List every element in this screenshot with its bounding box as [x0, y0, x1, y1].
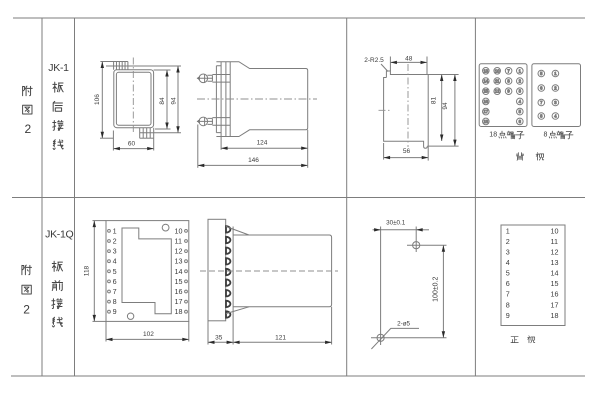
svg-text:14: 14 — [483, 79, 488, 84]
svg-text:4: 4 — [113, 257, 117, 266]
svg-text:124: 124 — [257, 140, 268, 147]
svg-text:11: 11 — [495, 79, 500, 84]
svg-text:4: 4 — [506, 258, 510, 267]
svg-text:9: 9 — [113, 307, 117, 316]
svg-text:JK-1: JK-1 — [48, 62, 69, 74]
svg-text:48: 48 — [405, 55, 413, 62]
svg-text:94: 94 — [442, 102, 449, 110]
svg-text:16: 16 — [175, 287, 183, 296]
svg-text:18: 18 — [175, 307, 183, 316]
svg-text:3: 3 — [113, 247, 117, 256]
svg-text:106: 106 — [94, 94, 101, 105]
svg-text:16: 16 — [551, 290, 559, 299]
svg-text:94: 94 — [170, 97, 177, 105]
svg-text:14: 14 — [175, 267, 183, 276]
svg-text:12: 12 — [175, 247, 183, 256]
svg-text:13: 13 — [551, 258, 559, 267]
svg-text:14: 14 — [551, 269, 559, 278]
svg-text:17: 17 — [551, 300, 559, 309]
svg-text:5: 5 — [113, 267, 117, 276]
svg-text:2: 2 — [506, 237, 510, 246]
svg-text:146: 146 — [248, 157, 259, 164]
svg-text:3: 3 — [506, 248, 510, 257]
svg-text:118: 118 — [83, 265, 90, 276]
svg-text:15: 15 — [551, 279, 559, 288]
svg-text:84: 84 — [159, 97, 166, 105]
svg-text:5: 5 — [506, 269, 510, 278]
svg-text:8: 8 — [544, 132, 548, 139]
svg-text:1: 1 — [113, 226, 117, 235]
svg-text:6: 6 — [113, 277, 117, 286]
svg-text:11: 11 — [551, 237, 558, 246]
svg-text:2-R2.5: 2-R2.5 — [364, 57, 384, 64]
svg-text:7: 7 — [506, 290, 510, 299]
svg-text:56: 56 — [403, 148, 411, 155]
svg-text:10: 10 — [175, 226, 183, 235]
svg-text:15: 15 — [483, 89, 488, 94]
svg-text:16: 16 — [483, 99, 488, 104]
svg-text:102: 102 — [143, 331, 154, 338]
svg-text:18: 18 — [551, 311, 559, 320]
svg-text:7: 7 — [113, 287, 117, 296]
svg-text:12: 12 — [495, 89, 500, 94]
svg-text:8: 8 — [506, 300, 510, 309]
svg-text:17: 17 — [175, 297, 183, 306]
svg-text:2: 2 — [23, 302, 30, 316]
svg-text:1: 1 — [506, 227, 510, 236]
svg-text:121: 121 — [275, 335, 286, 342]
svg-text:100±0.2: 100±0.2 — [433, 276, 440, 301]
svg-text:10: 10 — [551, 227, 559, 236]
svg-text:35: 35 — [215, 335, 223, 342]
svg-text:60: 60 — [128, 141, 136, 148]
svg-text:11: 11 — [175, 237, 182, 246]
svg-text:81: 81 — [430, 97, 437, 105]
svg-text:9: 9 — [506, 311, 510, 320]
svg-text:12: 12 — [551, 248, 559, 257]
svg-text:18: 18 — [483, 119, 488, 124]
svg-text:15: 15 — [175, 277, 183, 286]
svg-text:8: 8 — [113, 297, 117, 306]
svg-text:2: 2 — [24, 122, 31, 136]
svg-text:JK-1Q: JK-1Q — [45, 229, 73, 241]
svg-text:10: 10 — [495, 68, 500, 73]
svg-text:18: 18 — [489, 132, 497, 139]
svg-text:13: 13 — [175, 257, 183, 266]
svg-text:2-ø5: 2-ø5 — [397, 320, 410, 327]
svg-text:6: 6 — [506, 279, 510, 288]
svg-text:17: 17 — [483, 109, 488, 114]
svg-text:2: 2 — [113, 237, 117, 246]
svg-text:13: 13 — [483, 68, 488, 73]
svg-text:30±0.1: 30±0.1 — [386, 220, 406, 227]
